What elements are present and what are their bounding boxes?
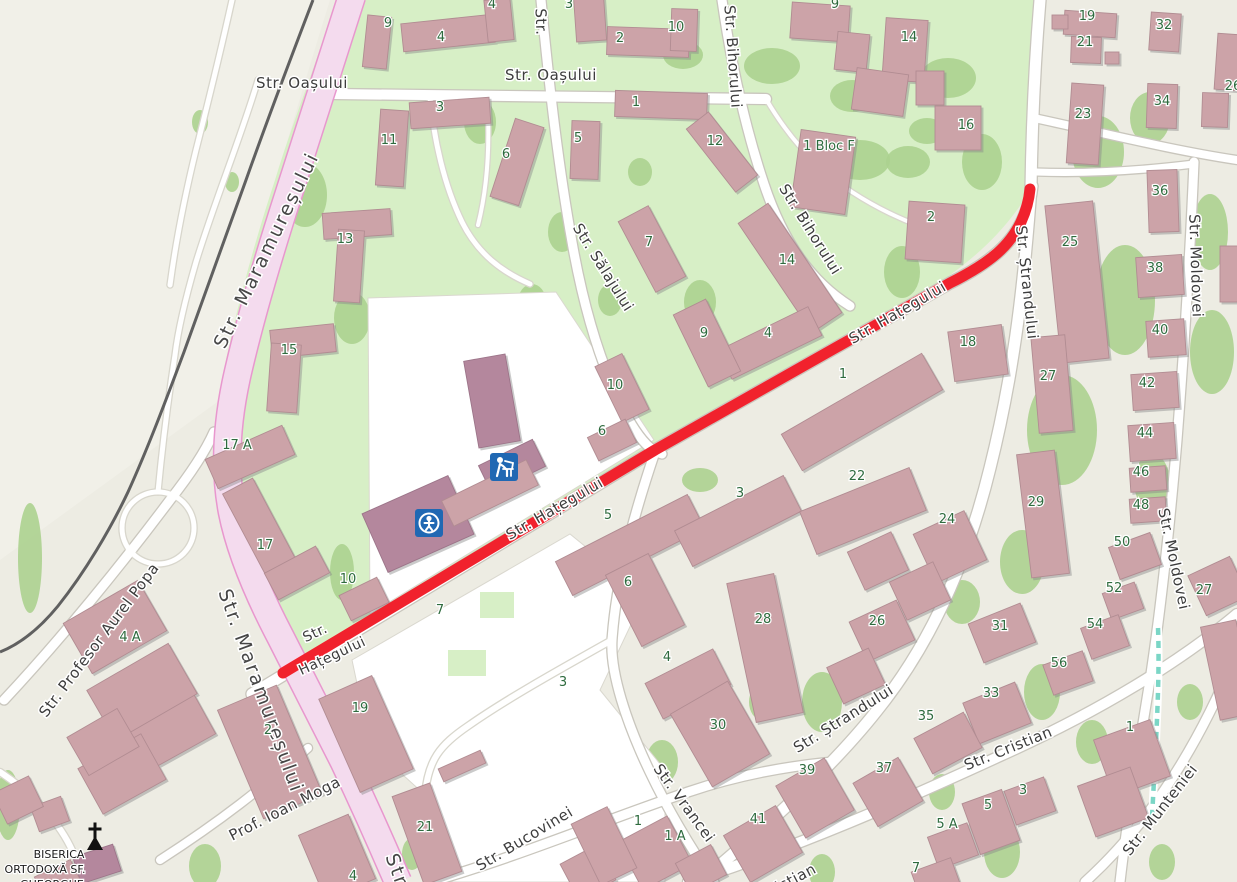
- street-label: Str.: [532, 8, 551, 36]
- house-number: 38: [1147, 261, 1164, 276]
- building: [851, 68, 908, 117]
- house-number: 9: [384, 16, 392, 31]
- house-number: 41: [750, 812, 767, 827]
- house-number: 28: [755, 612, 772, 627]
- house-number: 21: [1077, 35, 1094, 50]
- building: [615, 90, 708, 119]
- house-number: 25: [1062, 235, 1079, 250]
- tree-blob: [1149, 844, 1175, 880]
- house-number: 9: [700, 326, 708, 341]
- tree-blob: [628, 158, 652, 186]
- house-number: 2: [264, 723, 272, 738]
- house-number: 6: [624, 575, 632, 590]
- house-number: 7: [912, 861, 920, 876]
- house-number: 7: [436, 603, 444, 618]
- house-number: 5 A: [936, 817, 957, 832]
- house-number: 16: [958, 118, 975, 133]
- house-number: 26: [1225, 79, 1237, 94]
- house-number: 1: [1126, 720, 1134, 735]
- tree-blob: [18, 503, 42, 613]
- building: [1066, 83, 1104, 165]
- house-number: 46: [1133, 465, 1150, 480]
- house-number: 34: [1154, 94, 1171, 109]
- church-label-line: GHEORGHE: [20, 878, 84, 882]
- building: [570, 121, 600, 180]
- house-number: 3: [559, 675, 567, 690]
- building: [834, 31, 870, 72]
- tree-blob: [744, 48, 800, 84]
- house-number: 6: [598, 424, 606, 439]
- house-number: 18: [960, 335, 977, 350]
- building: [375, 109, 408, 187]
- house-number: 40: [1152, 323, 1169, 338]
- building: [1201, 93, 1228, 128]
- street-label: Str. Oașului: [256, 74, 348, 92]
- house-number: 1 Bloc F: [803, 139, 855, 154]
- house-number: 3: [565, 0, 573, 12]
- house-number: 4: [488, 0, 496, 12]
- house-number: 37: [876, 761, 893, 776]
- building: [1105, 52, 1119, 64]
- building: [1147, 169, 1179, 232]
- house-number: 7: [645, 235, 653, 250]
- house-number: 4: [764, 326, 772, 341]
- house-number: 2: [927, 210, 935, 225]
- house-number: 10: [607, 378, 624, 393]
- house-number: 36: [1152, 184, 1169, 199]
- church-label-line: ORTODOXĂ SF.: [5, 863, 86, 876]
- house-number: 26: [869, 614, 886, 629]
- house-number: 48: [1133, 498, 1150, 513]
- house-number: 32: [1156, 18, 1173, 33]
- building: [948, 324, 1008, 381]
- kindergarten-icon[interactable]: [415, 509, 443, 537]
- house-number: 27: [1040, 369, 1057, 384]
- tree-blob: [682, 468, 718, 492]
- house-number: 31: [992, 619, 1009, 634]
- house-number: 54: [1087, 617, 1104, 632]
- house-number: 3: [1019, 783, 1027, 798]
- lawn-patch: [480, 592, 514, 618]
- house-number: 1: [634, 814, 642, 829]
- house-number: 10: [668, 20, 685, 35]
- house-number: 3: [736, 486, 744, 501]
- house-number: 3: [436, 100, 444, 115]
- house-number: 2: [616, 31, 624, 46]
- house-number: 4: [437, 30, 445, 45]
- house-number: 11: [381, 133, 398, 148]
- house-number: 19: [1079, 9, 1096, 24]
- house-number: 14: [901, 30, 918, 45]
- building: [573, 0, 606, 42]
- tree-blob: [1190, 310, 1234, 394]
- building: [1052, 15, 1068, 29]
- house-number: 27: [1196, 583, 1213, 598]
- house-number: 4: [349, 869, 357, 882]
- house-number: 39: [799, 763, 816, 778]
- house-number: 17 A: [222, 438, 252, 453]
- house-number: 10: [340, 572, 357, 587]
- house-number: 19: [352, 701, 369, 716]
- house-number: 1 A: [664, 829, 685, 844]
- house-number: 50: [1114, 535, 1131, 550]
- house-number: 44: [1137, 426, 1154, 441]
- building: [409, 97, 491, 129]
- house-number: 4 A: [119, 630, 140, 645]
- house-number: 6: [502, 147, 510, 162]
- street-label: Str. Oașului: [505, 66, 597, 84]
- building: [1220, 246, 1237, 302]
- house-number: 1: [632, 95, 640, 110]
- house-number: 13: [337, 232, 354, 247]
- house-number: 9: [831, 0, 839, 12]
- house-number: 35: [918, 709, 935, 724]
- church-label-line: BISERICA: [34, 848, 85, 861]
- house-number: 29: [1028, 495, 1045, 510]
- house-number: 56: [1051, 656, 1068, 671]
- house-number: 12: [707, 134, 724, 149]
- house-number: 52: [1106, 581, 1123, 596]
- tree-blob: [1177, 684, 1203, 720]
- house-number: 23: [1075, 107, 1092, 122]
- house-number: 5: [604, 508, 612, 523]
- house-number: 30: [710, 718, 727, 733]
- map-viewport[interactable]: Str. OașuluiStr. OașuluiStr.Str. Bihorul…: [0, 0, 1237, 882]
- house-number: 33: [983, 686, 1000, 701]
- house-number: 4: [663, 650, 671, 665]
- school-icon[interactable]: [490, 453, 518, 481]
- house-number: 5: [574, 131, 582, 146]
- tree-blob: [886, 146, 930, 178]
- house-number: 21: [417, 820, 434, 835]
- map-canvas[interactable]: Str. OașuluiStr. OașuluiStr.Str. Bihorul…: [0, 0, 1237, 882]
- house-number: 24: [939, 512, 956, 527]
- house-number: 42: [1139, 376, 1156, 391]
- house-number: 14: [779, 253, 796, 268]
- house-number: 5: [984, 798, 992, 813]
- house-number: 15: [281, 343, 298, 358]
- house-number: 1: [839, 367, 847, 382]
- lawn-patch: [448, 650, 486, 676]
- house-number: 17: [257, 538, 274, 553]
- house-number: 22: [849, 469, 866, 484]
- building: [916, 71, 944, 105]
- street-label: Str. Moldovei: [1185, 214, 1207, 318]
